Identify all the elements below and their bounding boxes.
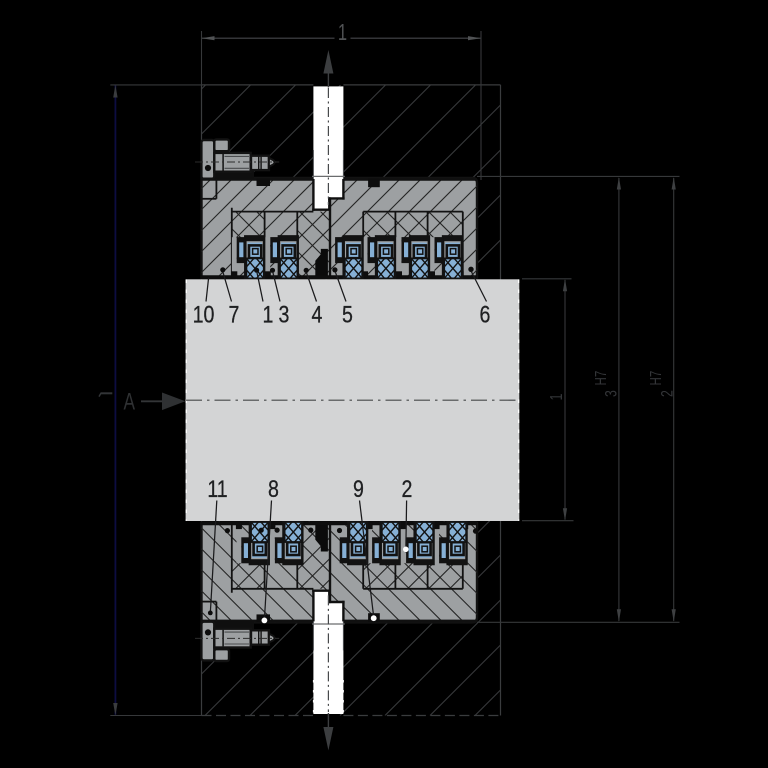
svg-text:H7: H7 (591, 371, 609, 386)
svg-text:5: 5 (342, 300, 353, 328)
svg-text:10: 10 (193, 300, 215, 328)
svg-text:2: 2 (402, 475, 413, 503)
svg-text:1: 1 (338, 20, 347, 45)
svg-text:4: 4 (312, 300, 323, 328)
svg-text:A: A (124, 389, 136, 415)
svg-text:8: 8 (268, 475, 279, 503)
svg-text:11: 11 (207, 475, 227, 503)
svg-text:9: 9 (353, 475, 364, 503)
svg-text:3: 3 (603, 390, 621, 397)
svg-text:2: 2 (659, 390, 677, 397)
svg-text:6: 6 (480, 300, 491, 328)
svg-text:H7: H7 (646, 371, 664, 386)
svg-text:1: 1 (263, 300, 274, 328)
svg-text:7: 7 (229, 300, 240, 328)
svg-text:3: 3 (279, 300, 290, 328)
svg-text:1: 1 (547, 393, 567, 400)
